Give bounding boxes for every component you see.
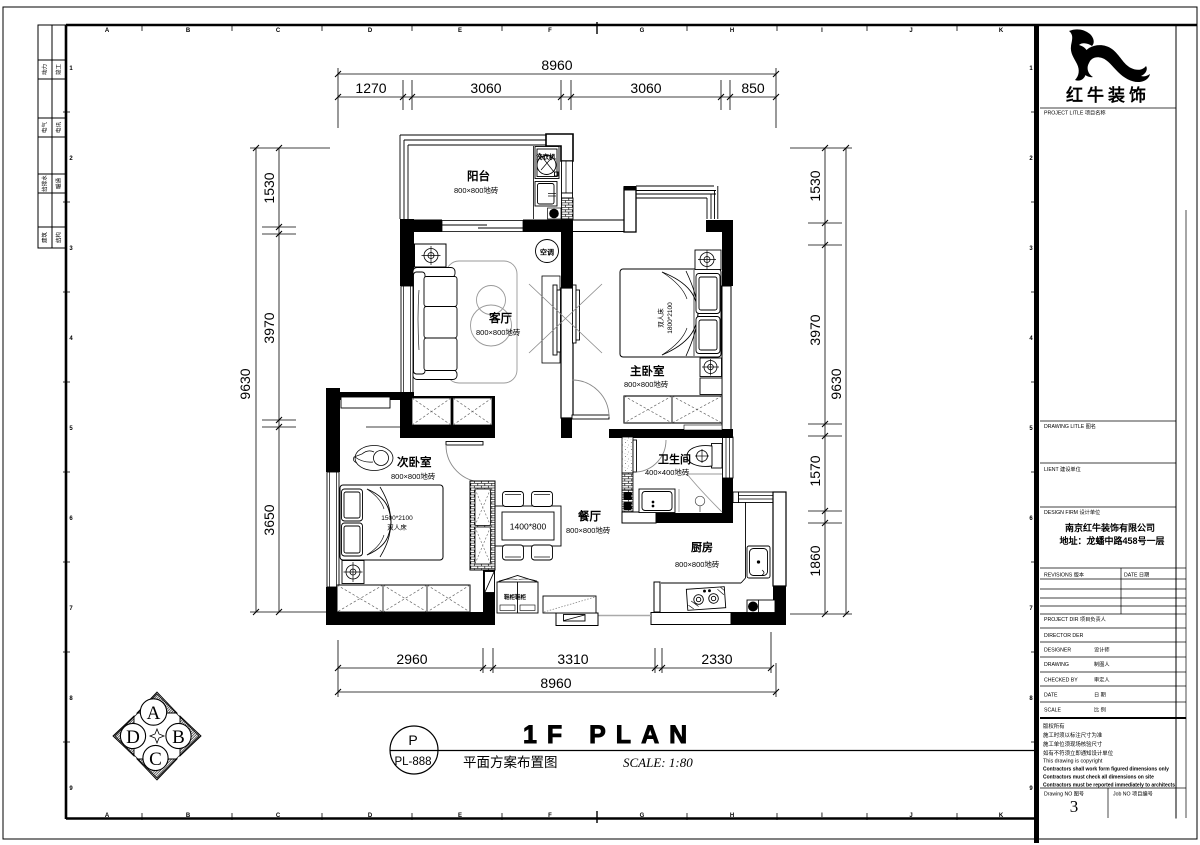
svg-text:A: A [147,703,161,724]
svg-text:K: K [999,28,1004,34]
svg-text:3: 3 [1070,797,1079,816]
svg-text:厨房: 厨房 [691,540,713,554]
svg-text:F: F [548,813,552,819]
svg-text:双人床: 双人床 [387,523,407,532]
svg-text:竣工: 竣工 [55,64,63,76]
svg-text:DRAWING: DRAWING [1044,662,1069,668]
svg-text:3060: 3060 [470,80,501,96]
svg-text:1530: 1530 [807,170,823,201]
svg-text:8960: 8960 [540,675,571,691]
svg-text:F: F [548,28,552,34]
svg-text:客厅: 客厅 [488,311,512,325]
svg-text:2960: 2960 [396,651,427,667]
svg-text:E: E [458,28,462,34]
svg-text:3310: 3310 [557,651,588,667]
svg-text:施工单位须现场核验尺寸: 施工单位须现场核验尺寸 [1043,740,1103,748]
svg-text:卫生间: 卫生间 [658,452,691,466]
svg-text:餐厅: 餐厅 [577,509,601,523]
svg-text:SCALE: SCALE [1044,708,1062,714]
svg-text:双人床: 双人床 [656,308,665,328]
svg-text:G: G [640,813,645,819]
svg-text:SCALE: 1:80: SCALE: 1:80 [623,755,693,770]
svg-text:CHECKED BY: CHECKED BY [1044,678,1078,684]
svg-text:D: D [126,727,140,748]
svg-text:3060: 3060 [630,80,661,96]
svg-text:红牛装饰: 红牛装饰 [1066,85,1150,105]
svg-text:暖通: 暖通 [55,178,63,190]
svg-text:A: A [105,813,110,819]
svg-text:2330: 2330 [701,651,732,667]
svg-text:比 例: 比 例 [1094,706,1106,714]
svg-text:800×800地砖: 800×800地砖 [566,525,611,535]
svg-text:阳台: 阳台 [467,169,490,183]
svg-text:Contractors shall work form fi: Contractors shall work form figured dime… [1043,767,1169,773]
svg-text:洗衣机: 洗衣机 [536,152,556,161]
svg-text:D: D [368,813,373,819]
svg-text:9630: 9630 [237,368,253,399]
svg-text:DESIGN FIRM 设计单位: DESIGN FIRM 设计单位 [1044,508,1100,516]
svg-text:PL-888: PL-888 [394,756,431,768]
svg-text:800×800地砖: 800×800地砖 [675,559,720,569]
svg-text:版权所有: 版权所有 [1043,722,1065,730]
svg-text:平面方案布置图: 平面方案布置图 [463,754,558,770]
svg-text:H: H [730,813,734,819]
svg-text:3970: 3970 [807,314,823,345]
svg-text:This drawing is copyright: This drawing is copyright [1043,759,1103,765]
svg-text:P: P [408,732,417,748]
svg-text:B: B [186,813,191,819]
svg-text:DIRECTOR DER: DIRECTOR DER [1044,633,1084,639]
svg-text:鞋柜鞋柜: 鞋柜鞋柜 [504,593,527,601]
svg-text:J: J [909,813,912,819]
svg-text:C: C [276,813,281,819]
svg-text:1530: 1530 [261,172,277,203]
svg-text:A: A [105,28,110,34]
svg-text:日 期: 日 期 [1094,692,1106,699]
svg-text:800×800地砖: 800×800地砖 [391,471,436,481]
svg-text:DATE 日期: DATE 日期 [1124,572,1149,579]
svg-text:B: B [186,28,191,34]
svg-text:给排水: 给排水 [41,175,49,192]
svg-text:1500*2100: 1500*2100 [381,515,413,522]
svg-text:南京红牛装饰有限公司: 南京红牛装饰有限公司 [1065,522,1155,533]
svg-text:1570: 1570 [807,455,823,486]
svg-text:3650: 3650 [261,504,277,535]
svg-text:DESIGNER: DESIGNER [1044,648,1071,654]
svg-text:J: J [909,28,912,34]
svg-text:LIENT 建设单位: LIENT 建设单位 [1044,465,1081,473]
svg-text:次卧室: 次卧室 [397,455,432,469]
svg-text:1800*2100: 1800*2100 [667,302,674,334]
svg-text:D: D [368,28,373,34]
svg-text:9630: 9630 [828,368,844,399]
svg-text:Contractors must check all dim: Contractors must check all dimensions on… [1043,775,1154,781]
svg-text:B: B [172,727,185,748]
svg-text:建筑: 建筑 [41,232,49,244]
svg-text:G: G [640,28,645,34]
svg-text:PROJECT DIR 项目负责人: PROJECT DIR 项目负责人 [1044,615,1106,623]
svg-text:1270: 1270 [355,80,386,96]
svg-text:3970: 3970 [261,312,277,343]
svg-text:主卧室: 主卧室 [630,364,665,378]
svg-text:设计师: 设计师 [1094,646,1110,654]
svg-text:电气: 电气 [41,122,49,134]
svg-text:E: E [458,813,462,819]
svg-text:K: K [999,813,1004,819]
svg-text:400×400地砖: 400×400地砖 [645,467,690,477]
svg-text:DRAWING LITLE 图名: DRAWING LITLE 图名 [1044,422,1096,430]
svg-text:REVISIONS 版本: REVISIONS 版本 [1044,571,1084,579]
svg-text:地址：龙蟠中路458号一层: 地址：龙蟠中路458号一层 [1059,535,1164,546]
svg-text:800×800地砖: 800×800地砖 [624,379,669,389]
svg-text:PROJECT LITLE 项目名称: PROJECT LITLE 项目名称 [1044,109,1106,117]
svg-text:1860: 1860 [807,545,823,576]
svg-text:制图人: 制图人 [1094,660,1110,668]
svg-text:DATE: DATE [1044,693,1058,699]
svg-text:Job NO 项目编号: Job NO 项目编号 [1113,790,1153,798]
svg-text:850: 850 [741,80,765,96]
svg-text:电讯: 电讯 [55,122,63,134]
svg-text:结构: 结构 [55,232,63,244]
svg-text:Contractors must be reported i: Contractors must be reported immediately… [1043,783,1175,789]
svg-text:空调: 空调 [540,248,554,257]
svg-text:C: C [276,28,281,34]
svg-text:H: H [730,28,734,34]
svg-text:C: C [149,749,162,770]
svg-text:8960: 8960 [541,57,572,73]
svg-text:1400*800: 1400*800 [510,522,547,532]
svg-text:施工时须以标注尺寸为准: 施工时须以标注尺寸为准 [1043,731,1103,739]
svg-text:如有不符须立即通知设计单位: 如有不符须立即通知设计单位 [1043,749,1114,757]
svg-text:800×800地砖: 800×800地砖 [476,327,521,337]
svg-text:审定人: 审定人 [1094,676,1110,684]
svg-text:800×800地砖: 800×800地砖 [454,185,499,195]
svg-text:动力: 动力 [41,64,49,75]
svg-text:1F PLAN: 1F PLAN [523,721,697,749]
